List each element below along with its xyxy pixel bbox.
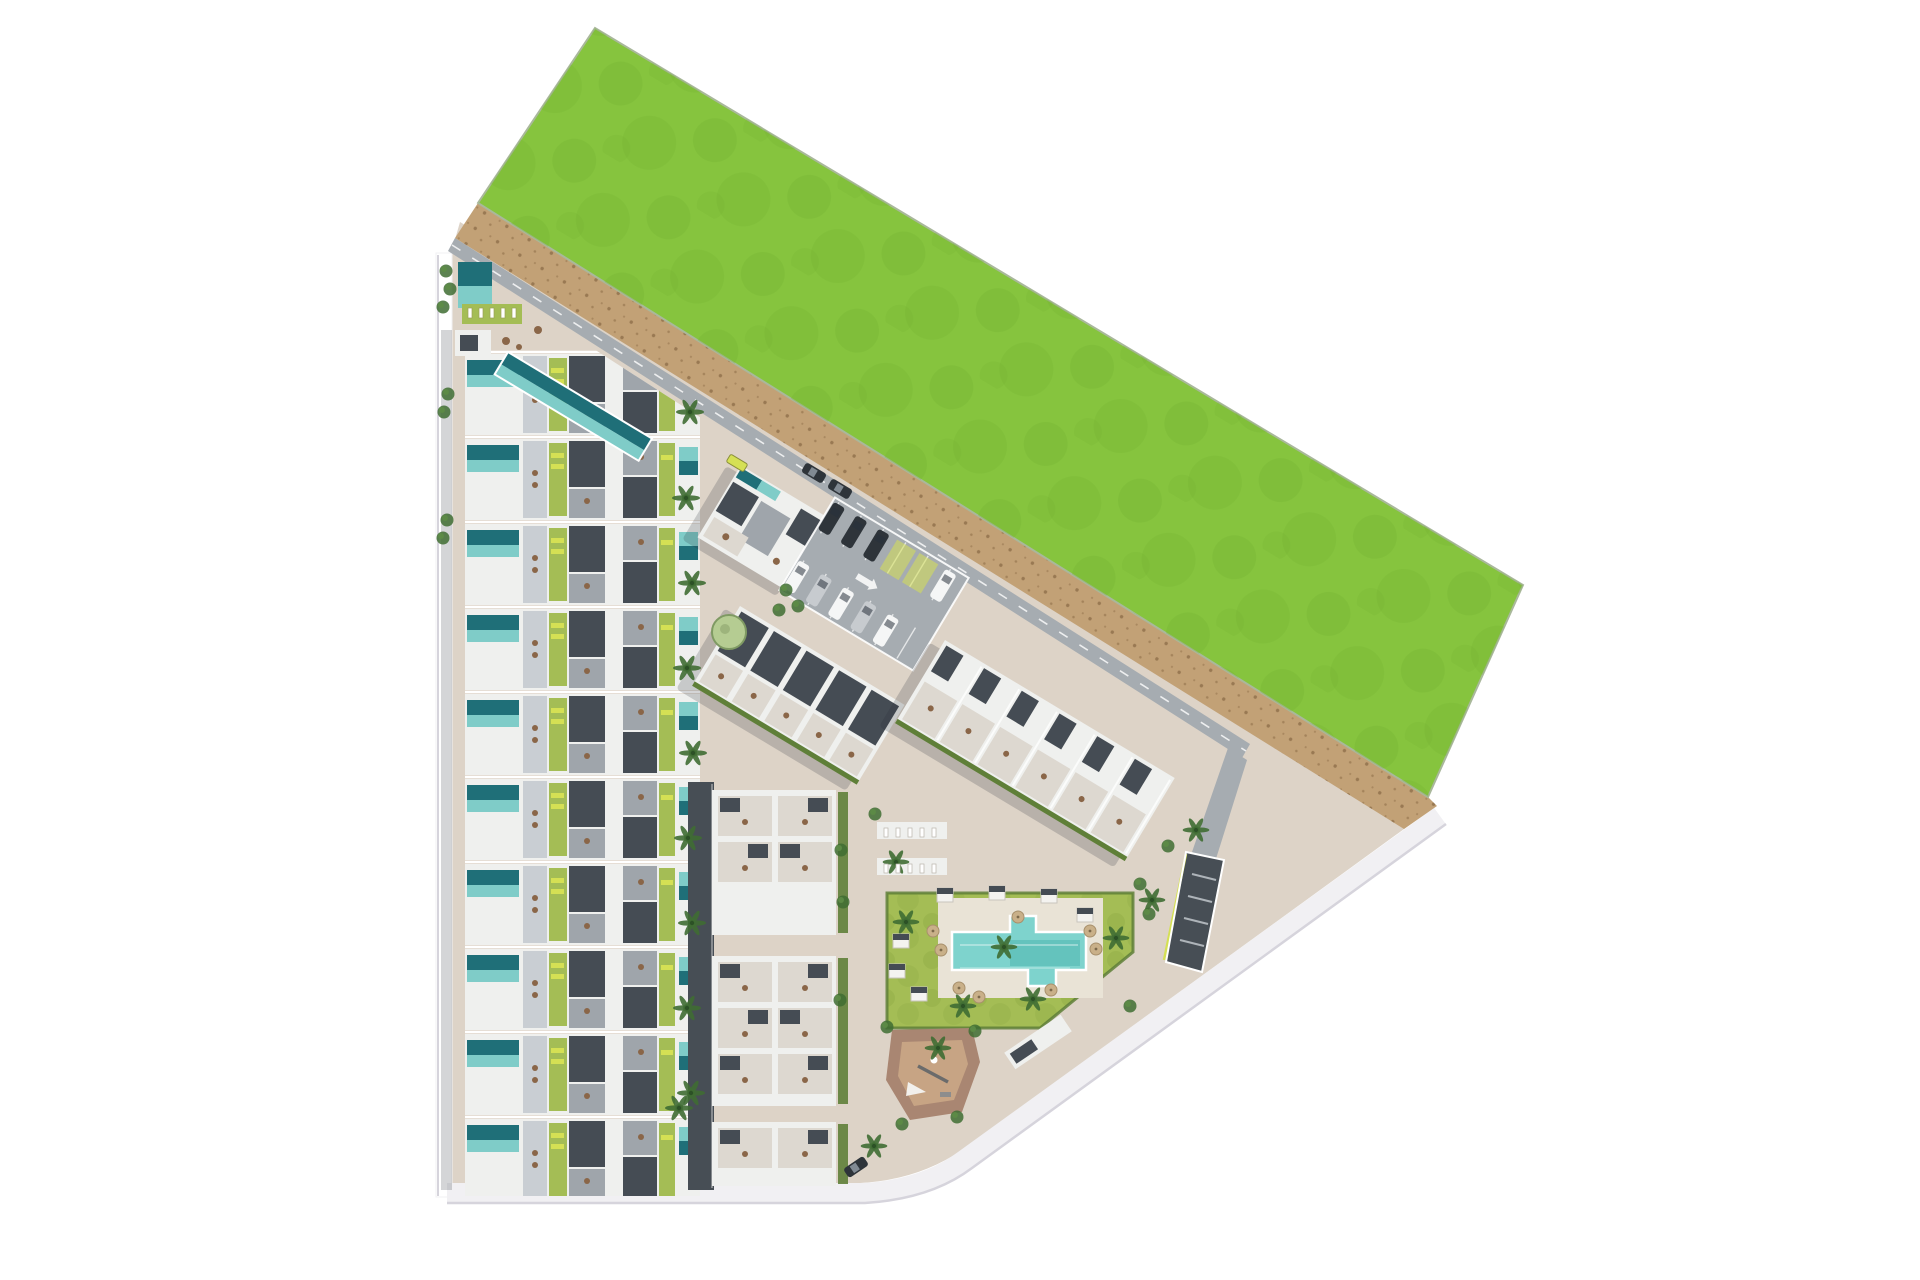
townhouse-roof-part xyxy=(467,530,519,545)
townhouse-rows xyxy=(465,352,700,1200)
umbrella-pole xyxy=(932,930,935,933)
townhouse-roof-part xyxy=(467,700,519,715)
sun-lounger xyxy=(512,308,516,318)
palm-trunk xyxy=(961,1004,965,1008)
umbrella-pole xyxy=(940,949,943,952)
roof-furniture xyxy=(638,539,644,545)
palm-trunk xyxy=(677,1106,681,1110)
bush-highlight xyxy=(1163,841,1169,847)
townhouse-roof-part xyxy=(661,795,673,800)
townhouse-roof-part xyxy=(607,1145,621,1173)
townhouse-roof-part xyxy=(551,464,564,469)
terrace-table xyxy=(742,819,748,825)
sun-lounger xyxy=(896,864,900,873)
townhouse-roof-part xyxy=(551,804,564,809)
hedge-strip xyxy=(838,792,848,933)
palm-trunk xyxy=(685,666,689,670)
roof-furniture xyxy=(532,482,538,488)
roof-furniture xyxy=(584,923,590,929)
roof-furniture xyxy=(638,624,644,630)
sun-lounger xyxy=(932,828,936,837)
roof-furniture xyxy=(532,1162,538,1168)
townhouse-roof-part xyxy=(623,902,657,943)
site-plan-canvas xyxy=(0,0,1920,1280)
apartment-roof xyxy=(720,1130,740,1144)
terrace-table xyxy=(802,1077,808,1083)
sun-lounger xyxy=(468,308,472,318)
palm-trunk xyxy=(688,410,692,414)
roof-furniture xyxy=(532,895,538,901)
townhouse-roof-part xyxy=(523,951,547,1028)
terrace-table xyxy=(802,1151,808,1157)
cabana xyxy=(893,934,909,948)
bush-highlight xyxy=(445,284,451,290)
site-plan-rendering xyxy=(0,0,1920,1280)
bush-highlight xyxy=(438,302,444,308)
townhouse-roof-part xyxy=(679,702,698,716)
townhouse-row xyxy=(465,437,700,520)
townhouse-roof-part xyxy=(659,698,675,771)
umbrella-pole xyxy=(1095,948,1098,951)
townhouse-roof-part xyxy=(623,817,657,858)
cabana xyxy=(937,888,953,902)
roof-furniture xyxy=(532,980,538,986)
townhouse-roof-part xyxy=(467,800,519,812)
bush-highlight xyxy=(793,601,799,607)
roof-furniture xyxy=(532,1065,538,1071)
townhouse-roof-part xyxy=(623,732,657,773)
roof-furniture xyxy=(638,794,644,800)
sun-lounger xyxy=(908,828,912,837)
sun-lounger xyxy=(908,864,912,873)
cabana-roof xyxy=(893,934,909,940)
sun-lounger xyxy=(501,308,505,318)
cabana-roof xyxy=(1077,908,1093,914)
villa-shadow-strip xyxy=(441,330,452,1190)
townhouse-roof-part xyxy=(659,868,675,941)
roof-furniture xyxy=(584,1008,590,1014)
palm-trunk xyxy=(1002,945,1006,949)
townhouse-roof-part xyxy=(467,1140,519,1152)
bush-highlight xyxy=(838,897,844,903)
townhouse-roof-part xyxy=(607,380,621,408)
townhouse-roof-part xyxy=(551,793,564,798)
terrace-table xyxy=(742,1077,748,1083)
townhouse-roof-part xyxy=(661,1050,673,1055)
townhouse-roof-part xyxy=(467,460,519,472)
palm-trunk xyxy=(686,836,690,840)
roof-furniture xyxy=(638,709,644,715)
townhouse-roof-part xyxy=(623,987,657,1028)
townhouse-roof-part xyxy=(551,1133,564,1138)
townhouse-roof-part xyxy=(551,1144,564,1149)
apartment-block xyxy=(712,790,848,935)
townhouse-roof-part xyxy=(523,1121,547,1198)
townhouse-row xyxy=(465,692,700,775)
bush-highlight xyxy=(836,845,842,851)
townhouse-roof-part xyxy=(523,441,547,518)
townhouse-roof-part xyxy=(467,1125,519,1140)
cabana xyxy=(1077,908,1093,922)
bush-highlight xyxy=(441,266,447,272)
lap-pool xyxy=(458,262,492,286)
townhouse-roof-part xyxy=(679,631,698,645)
cabana xyxy=(889,964,905,978)
townhouse-roof-part xyxy=(569,441,605,487)
townhouse-roof-part xyxy=(659,443,675,516)
townhouse-roof-part xyxy=(523,1036,547,1113)
roof-furniture xyxy=(532,992,538,998)
bush-highlight xyxy=(970,1026,976,1032)
terrace-table xyxy=(534,326,542,334)
terrace-table xyxy=(802,985,808,991)
townhouse-roof-part xyxy=(623,1072,657,1113)
palm-trunk xyxy=(691,751,695,755)
apartment-roof xyxy=(780,1010,800,1024)
bush-highlight xyxy=(952,1112,958,1118)
townhouse-roof-part xyxy=(523,866,547,943)
townhouse-roof-part xyxy=(679,447,698,461)
townhouse-roof-part xyxy=(551,453,564,458)
townhouse-row xyxy=(465,522,700,605)
sun-lounger xyxy=(896,828,900,837)
bush-highlight xyxy=(442,515,448,521)
roof-furniture xyxy=(638,964,644,970)
apartment-roof xyxy=(808,798,828,812)
townhouse-roof-part xyxy=(569,696,605,742)
townhouse-roof-part xyxy=(661,880,673,885)
townhouse-roof-part xyxy=(551,719,564,724)
palm-trunk xyxy=(936,1046,940,1050)
hedge-strip xyxy=(838,958,848,1104)
palm-trunk xyxy=(1031,997,1035,1001)
palm-trunk xyxy=(1150,898,1154,902)
townhouse-roof-part xyxy=(467,615,519,630)
townhouse-roof-part xyxy=(569,866,605,912)
terrace-table xyxy=(802,1031,808,1037)
townhouse-roof-part xyxy=(467,1055,519,1067)
sun-lounger xyxy=(479,308,483,318)
sun-lounger xyxy=(920,864,924,873)
townhouse-roof-part xyxy=(551,1059,564,1064)
bush-highlight xyxy=(443,389,449,395)
roof-furniture xyxy=(532,652,538,658)
townhouse-roof-part xyxy=(467,1040,519,1055)
townhouse-roof-part xyxy=(523,696,547,773)
apartment-roof xyxy=(748,844,768,858)
bush-highlight xyxy=(1125,1001,1131,1007)
cabana-roof xyxy=(889,964,905,970)
townhouse-roof-part xyxy=(623,647,657,688)
townhouse-roof-part xyxy=(623,1157,657,1198)
townhouse-roof-part xyxy=(523,526,547,603)
townhouse-roof-part xyxy=(467,445,519,460)
townhouse-roof-part xyxy=(679,716,698,730)
townhouse-roof-part xyxy=(679,617,698,631)
bush-highlight xyxy=(1135,879,1141,885)
roof-furniture xyxy=(532,822,538,828)
townhouse-roof-part xyxy=(569,951,605,997)
palm-trunk xyxy=(685,1006,689,1010)
bush-highlight xyxy=(439,407,445,413)
terrace-table xyxy=(516,344,522,350)
pool-house-roof xyxy=(460,335,478,351)
townhouse-roof-part xyxy=(659,783,675,856)
townhouse-row xyxy=(465,777,700,860)
roof-furniture xyxy=(532,640,538,646)
roof-furniture xyxy=(584,838,590,844)
townhouse-roof-part xyxy=(659,1123,675,1196)
roof-furniture xyxy=(584,668,590,674)
roof-furniture xyxy=(532,1077,538,1083)
apartment-roof xyxy=(808,964,828,978)
terrace-table xyxy=(802,819,808,825)
bush-highlight xyxy=(774,605,780,611)
townhouse-roof-part xyxy=(661,540,673,545)
townhouse-roof-part xyxy=(661,710,673,715)
townhouse-roof-part xyxy=(659,613,675,686)
townhouse-roof-part xyxy=(569,1121,605,1167)
bush-highlight xyxy=(438,533,444,539)
terrace-table xyxy=(802,865,808,871)
cabana-roof xyxy=(989,886,1005,892)
bush-highlight xyxy=(1144,909,1150,915)
play-equipment xyxy=(940,1092,951,1097)
townhouse-roof-part xyxy=(659,528,675,601)
apartment-roof xyxy=(720,798,740,812)
terrace-table xyxy=(742,865,748,871)
townhouse-roof-part xyxy=(661,625,673,630)
townhouse-roof-part xyxy=(661,455,673,460)
townhouse-roof-part xyxy=(569,1036,605,1082)
roof-furniture xyxy=(532,1150,538,1156)
townhouse-roof-part xyxy=(551,549,564,554)
townhouse-roof-part xyxy=(623,477,657,518)
palm-trunk xyxy=(689,1091,693,1095)
sun-lounger xyxy=(884,828,888,837)
townhouse-roof-part xyxy=(551,1048,564,1053)
palm-trunk xyxy=(690,581,694,585)
roof-furniture xyxy=(638,1049,644,1055)
townhouse-roof-part xyxy=(659,953,675,1026)
sun-lounger xyxy=(490,308,494,318)
umbrella-pole xyxy=(1089,930,1092,933)
umbrella-pole xyxy=(978,996,981,999)
roof-furniture xyxy=(532,810,538,816)
roof-furniture xyxy=(532,725,538,731)
townhouse-roof-part xyxy=(467,970,519,982)
townhouse-roof-part xyxy=(569,611,605,657)
roof-furniture xyxy=(584,1093,590,1099)
townhouse-roof-part xyxy=(523,611,547,688)
townhouse-roof-part xyxy=(467,870,519,885)
umbrella-pole xyxy=(1017,916,1020,919)
palm-trunk xyxy=(1194,828,1198,832)
townhouse-roof-part xyxy=(607,805,621,833)
bush-highlight xyxy=(882,1022,888,1028)
roof-furniture xyxy=(532,737,538,743)
townhouse-roof-part xyxy=(607,550,621,578)
terrace-table xyxy=(742,1151,748,1157)
townhouse-row xyxy=(465,947,700,1030)
townhouse-roof-part xyxy=(623,562,657,603)
townhouse-roof-part xyxy=(467,715,519,727)
terrace-table xyxy=(742,1031,748,1037)
terrace-table xyxy=(502,337,510,345)
townhouse-row xyxy=(465,862,700,945)
bush-highlight xyxy=(870,809,876,815)
apartment-roof xyxy=(808,1056,828,1070)
roof-furniture xyxy=(532,470,538,476)
apartment-roof xyxy=(808,1130,828,1144)
sun-lounger xyxy=(932,864,936,873)
roof-furniture xyxy=(532,567,538,573)
townhouse-roof-part xyxy=(607,635,621,663)
townhouse-roof-part xyxy=(661,965,673,970)
palm-trunk xyxy=(684,496,688,500)
townhouse-roof-part xyxy=(679,546,698,560)
townhouse-roof-part xyxy=(467,785,519,800)
townhouse-roof-part xyxy=(607,975,621,1003)
apartment-block xyxy=(712,1122,848,1186)
townhouse-row xyxy=(465,607,700,690)
cabana-roof xyxy=(911,987,927,993)
palm-trunk xyxy=(904,920,908,924)
roof-furniture xyxy=(584,583,590,589)
cabana-roof xyxy=(937,888,953,894)
townhouse-roof-part xyxy=(607,720,621,748)
townhouse-roof-part xyxy=(551,878,564,883)
apartment-column-d xyxy=(712,790,848,1186)
townhouse-roof-part xyxy=(679,461,698,475)
roof-furniture xyxy=(532,907,538,913)
townhouse-roof-part xyxy=(467,885,519,897)
townhouse-roof-part xyxy=(467,955,519,970)
apartment-roof xyxy=(748,1010,768,1024)
palm-trunk xyxy=(894,860,898,864)
townhouse-roof-part xyxy=(661,1135,673,1140)
cabana-roof xyxy=(1041,889,1057,895)
sun-lounger xyxy=(920,828,924,837)
umbrella-pole xyxy=(958,987,961,990)
sun-lounger xyxy=(884,864,888,873)
terrace-table xyxy=(742,985,748,991)
apartment-roof xyxy=(720,1056,740,1070)
roof-furniture xyxy=(638,879,644,885)
townhouse-roof-part xyxy=(607,890,621,918)
townhouse-row xyxy=(465,1032,700,1115)
roof-furniture xyxy=(638,1134,644,1140)
townhouse-roof-part xyxy=(551,368,564,373)
apartment-roof xyxy=(780,844,800,858)
townhouse-roof-part xyxy=(569,526,605,572)
round-tree-crown xyxy=(720,624,730,634)
bush-highlight xyxy=(781,585,787,591)
townhouse-roof-part xyxy=(607,465,621,493)
cabana xyxy=(989,886,1005,900)
townhouse-roof-part xyxy=(569,781,605,827)
apartment-roof xyxy=(720,964,740,978)
townhouse-roof-part xyxy=(523,781,547,858)
townhouse-roof-part xyxy=(551,634,564,639)
roof-furniture xyxy=(584,498,590,504)
townhouse-roof-part xyxy=(607,1060,621,1088)
hedge-strip xyxy=(838,1124,848,1184)
roof-furniture xyxy=(532,555,538,561)
palm-trunk xyxy=(872,1144,876,1148)
bush-highlight xyxy=(835,995,841,1001)
townhouse-row xyxy=(465,1117,700,1200)
cabana xyxy=(911,987,927,1001)
palm-trunk xyxy=(1114,936,1118,940)
townhouse-roof-part xyxy=(551,538,564,543)
umbrella-pole xyxy=(1050,989,1053,992)
apartment-block xyxy=(712,956,848,1106)
palm-trunk xyxy=(690,921,694,925)
roof-furniture xyxy=(584,1178,590,1184)
townhouse-roof-part xyxy=(467,630,519,642)
townhouse-roof-part xyxy=(551,889,564,894)
bush-highlight xyxy=(897,1119,903,1125)
townhouse-roof-part xyxy=(551,963,564,968)
townhouse-roof-part xyxy=(551,708,564,713)
cabana xyxy=(1041,889,1057,903)
roof-furniture xyxy=(584,753,590,759)
townhouse-roof-part xyxy=(467,545,519,557)
swimming-pool-deep xyxy=(1010,940,1080,966)
townhouse-roof-part xyxy=(551,974,564,979)
townhouse-roof-part xyxy=(551,623,564,628)
